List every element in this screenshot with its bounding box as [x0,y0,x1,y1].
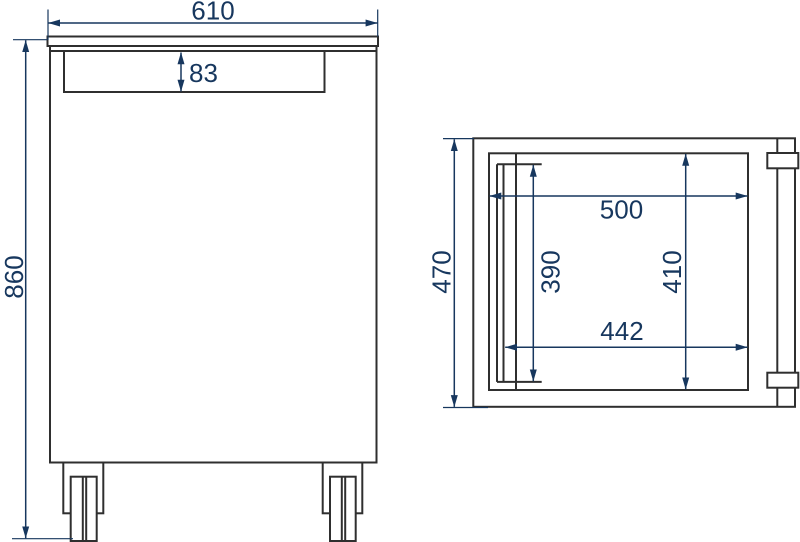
hinge-block-bottom [767,373,798,388]
hinge-block-top [767,153,798,168]
dimension-drawing: 610 860 83 470 500 442 390 410 [0,0,800,542]
dimension-label-width: 610 [191,0,234,26]
caster-left [63,463,103,542]
side-outer-outline [473,138,795,407]
drawing-canvas: 610 860 83 470 500 442 390 410 [0,0,800,542]
caster-right [323,463,363,542]
dimension-label-inner-left-height: 390 [536,250,566,293]
cabinet-body-outline [50,46,377,463]
side-view [473,138,798,407]
front-view [48,37,379,542]
caster-right-wheel [330,477,356,541]
dimension-label-inner-width: 500 [600,195,643,225]
dimension-label-inner-right-height: 410 [657,250,687,293]
worktop-outline [48,37,379,47]
dimension-label-height: 860 [0,255,29,298]
dimension-label-top-panel: 83 [189,58,218,88]
dimension-label-inner-bottom-width: 442 [600,316,643,346]
dimension-label-depth: 470 [427,250,457,293]
